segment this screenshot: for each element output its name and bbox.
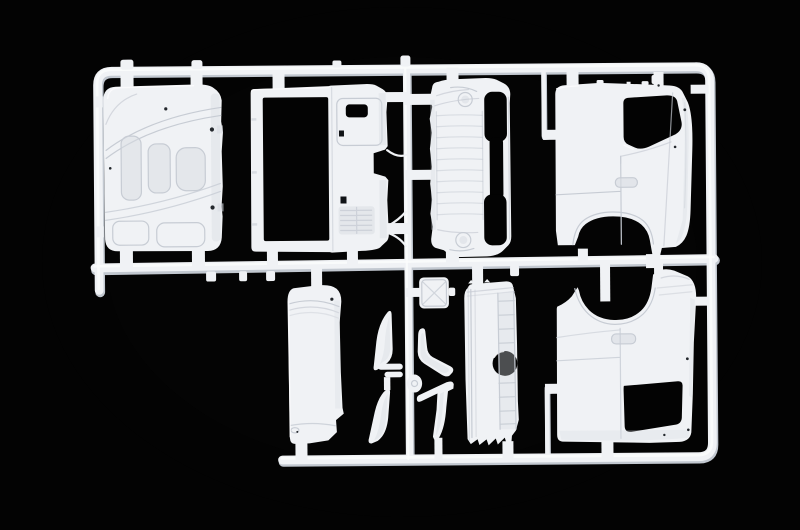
rear-wall-small-window — [346, 104, 368, 117]
part-cab-front-panel — [429, 78, 511, 258]
part-cab-roof-panel — [103, 84, 224, 252]
part-grille-step-panel — [464, 279, 519, 446]
sprue-photo — [0, 0, 800, 530]
sprue-scene — [0, 0, 800, 530]
part-cab-rear-wall — [250, 84, 389, 253]
rear-wall-opening — [263, 97, 330, 241]
part-side-skirt-panel — [287, 285, 344, 444]
door-window-opening-lower — [624, 381, 683, 432]
